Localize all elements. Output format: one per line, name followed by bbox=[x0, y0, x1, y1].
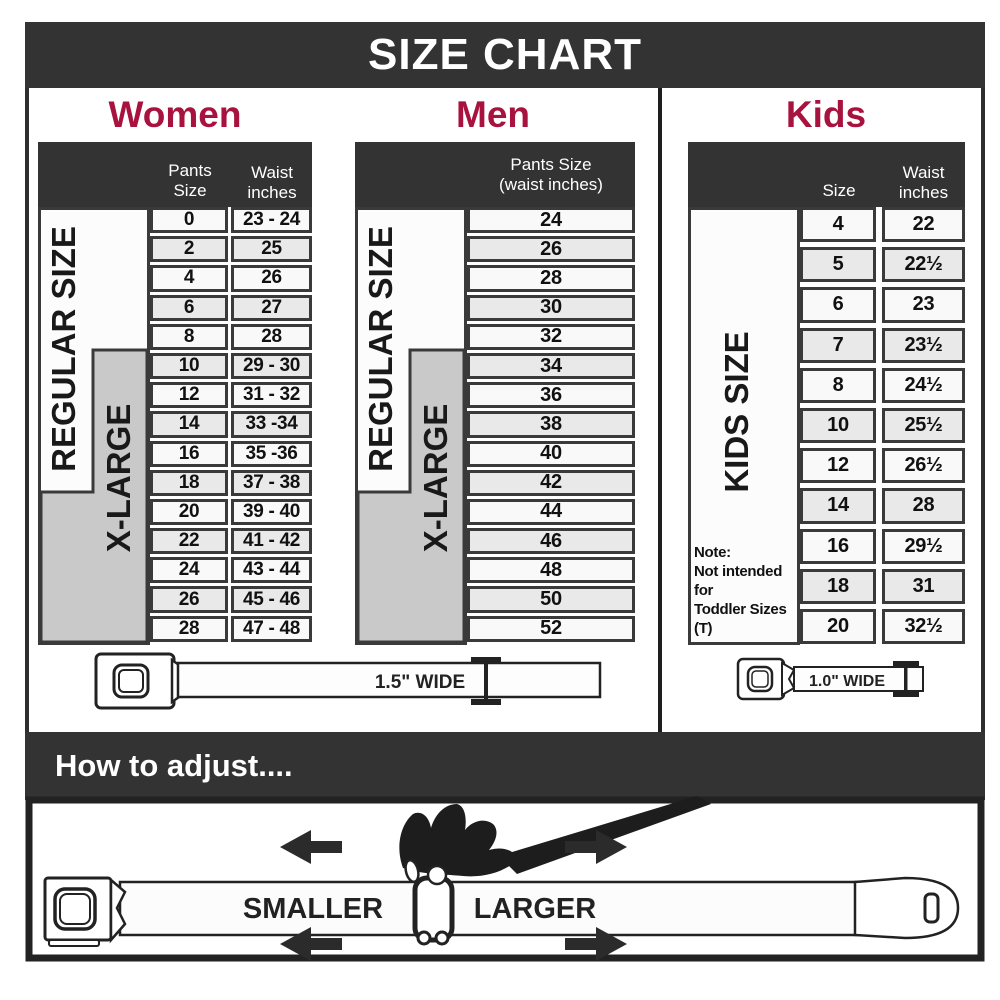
kids-note: Note: Not intended for Toddler Sizes (T) bbox=[694, 543, 796, 638]
table-cell: 5 bbox=[800, 247, 876, 282]
table-cell: 12 bbox=[800, 448, 876, 483]
table-cell: 12 bbox=[150, 382, 228, 408]
table-cell: 48 bbox=[467, 557, 635, 583]
kids-heading: Kids bbox=[701, 94, 951, 136]
table-cell: 31 bbox=[882, 569, 965, 604]
table-cell: 28 bbox=[231, 324, 312, 350]
adult-belt-illustration: 1.5" WIDE bbox=[90, 650, 610, 712]
table-cell: 2 bbox=[150, 236, 228, 262]
table-cell: 24 bbox=[467, 207, 635, 233]
table-cell: 20 bbox=[150, 499, 228, 525]
table-cell: 41 - 42 bbox=[231, 528, 312, 554]
table-cell: 28 bbox=[882, 488, 965, 523]
kids-size-table: 422522½623723½824½1025½1226½14281629½183… bbox=[800, 207, 965, 644]
kids-note-line1: Note: bbox=[694, 543, 796, 562]
women-table-header: Pants Size Waist inches bbox=[38, 142, 312, 207]
table-cell: 44 bbox=[467, 499, 635, 525]
women-regular-size-label: REGULAR SIZE bbox=[45, 226, 83, 472]
kids-note-line2: Not intended for bbox=[694, 562, 796, 600]
men-regular-size-label: REGULAR SIZE bbox=[362, 226, 400, 472]
men-table-header: Pants Size (waist inches) bbox=[355, 142, 635, 207]
table-cell: 38 bbox=[467, 411, 635, 437]
table-cell: 43 - 44 bbox=[231, 557, 312, 583]
table-cell: 34 bbox=[467, 353, 635, 379]
table-cell: 40 bbox=[467, 441, 635, 467]
table-cell: 26 bbox=[467, 236, 635, 262]
table-cell: 6 bbox=[150, 295, 228, 321]
women-waist-header: Waist inches bbox=[232, 163, 312, 203]
table-cell: 28 bbox=[150, 616, 228, 642]
table-cell: 26½ bbox=[882, 448, 965, 483]
table-cell: 29 - 30 bbox=[231, 353, 312, 379]
men-xlarge-label: X-LARGE bbox=[417, 404, 455, 553]
table-cell: 25 bbox=[231, 236, 312, 262]
women-xlarge-label: X-LARGE bbox=[100, 404, 138, 553]
women-size-table: 023 - 242254266278281029 - 301231 - 3214… bbox=[150, 207, 312, 642]
table-cell: 16 bbox=[150, 441, 228, 467]
men-pants-size-header: Pants Size (waist inches) bbox=[467, 155, 635, 195]
table-cell: 14 bbox=[800, 488, 876, 523]
table-cell: 18 bbox=[150, 470, 228, 496]
table-cell: 50 bbox=[467, 586, 635, 612]
main-panel: Women Men Kids Pants Size Waist inches R… bbox=[25, 88, 985, 732]
table-cell: 4 bbox=[800, 207, 876, 242]
kids-waist-header-line2: inches bbox=[882, 183, 965, 203]
table-cell: 47 - 48 bbox=[231, 616, 312, 642]
table-cell: 45 - 46 bbox=[231, 586, 312, 612]
men-heading: Men bbox=[368, 94, 618, 136]
table-cell: 37 - 38 bbox=[231, 470, 312, 496]
table-cell: 0 bbox=[150, 207, 228, 233]
table-cell: 10 bbox=[800, 408, 876, 443]
kids-table-header: Size Waist inches bbox=[688, 142, 965, 207]
table-cell: 33 -34 bbox=[231, 411, 312, 437]
belt-adjuster bbox=[415, 878, 452, 944]
table-cell: 25½ bbox=[882, 408, 965, 443]
kids-size-header: Size bbox=[800, 181, 878, 201]
kids-size-label-column: KIDS SIZE Note: Not intended for Toddler… bbox=[688, 207, 800, 645]
kids-waist-header: Waist inches bbox=[882, 163, 965, 203]
table-cell: 7 bbox=[800, 328, 876, 363]
table-cell: 35 -36 bbox=[231, 441, 312, 467]
table-cell: 8 bbox=[800, 368, 876, 403]
table-cell: 36 bbox=[467, 382, 635, 408]
kids-size-label: KIDS SIZE bbox=[718, 331, 756, 492]
table-cell: 22½ bbox=[882, 247, 965, 282]
how-to-adjust-heading: How to adjust.... bbox=[55, 748, 293, 784]
seatbelt-buckle-icon bbox=[738, 659, 794, 699]
table-cell: 26 bbox=[231, 265, 312, 291]
table-cell: 29½ bbox=[882, 529, 965, 564]
table-cell: 28 bbox=[467, 265, 635, 291]
table-cell: 32 bbox=[467, 324, 635, 350]
women-pants-size-header: Pants Size bbox=[150, 161, 230, 201]
table-cell: 20 bbox=[800, 609, 876, 644]
table-cell: 27 bbox=[231, 295, 312, 321]
adult-belt-width-label: 1.5" WIDE bbox=[375, 672, 465, 693]
men-header-line2: (waist inches) bbox=[467, 175, 635, 195]
belt-tail bbox=[855, 878, 958, 938]
page-title: SIZE CHART bbox=[368, 30, 642, 80]
panel-divider bbox=[658, 88, 662, 732]
table-cell: 42 bbox=[467, 470, 635, 496]
table-cell: 8 bbox=[150, 324, 228, 350]
table-cell: 24 bbox=[150, 557, 228, 583]
size-chart-page: SIZE CHART Women Men Kids Pants Size Wai… bbox=[0, 0, 1000, 1000]
larger-label: LARGER bbox=[474, 893, 597, 925]
kids-note-line3: Toddler Sizes (T) bbox=[694, 600, 796, 638]
table-cell: 23 - 24 bbox=[231, 207, 312, 233]
table-cell: 39 - 40 bbox=[231, 499, 312, 525]
kids-belt-illustration: 1.0" WIDE bbox=[735, 655, 930, 705]
table-cell: 46 bbox=[467, 528, 635, 554]
table-cell: 24½ bbox=[882, 368, 965, 403]
men-size-table: 242628303234363840424446485052 bbox=[467, 207, 635, 642]
table-cell: 30 bbox=[467, 295, 635, 321]
women-size-label-column: REGULAR SIZE X-LARGE bbox=[38, 207, 150, 645]
table-cell: 23½ bbox=[882, 328, 965, 363]
how-to-adjust-bar: How to adjust.... bbox=[25, 732, 985, 800]
table-cell: 23 bbox=[882, 287, 965, 322]
table-cell: 22 bbox=[882, 207, 965, 242]
seatbelt-buckle-icon bbox=[45, 878, 125, 946]
table-cell: 22 bbox=[150, 528, 228, 554]
table-cell: 52 bbox=[467, 616, 635, 642]
table-cell: 6 bbox=[800, 287, 876, 322]
women-waist-header-line1: Waist bbox=[232, 163, 312, 183]
smaller-label: SMALLER bbox=[243, 893, 383, 925]
men-header-line1: Pants Size bbox=[467, 155, 635, 175]
table-cell: 16 bbox=[800, 529, 876, 564]
table-cell: 32½ bbox=[882, 609, 965, 644]
table-cell: 4 bbox=[150, 265, 228, 291]
right-border bbox=[981, 88, 985, 732]
men-size-label-column: REGULAR SIZE X-LARGE bbox=[355, 207, 467, 645]
table-cell: 26 bbox=[150, 586, 228, 612]
adjust-illustration: SMALLER LARGER bbox=[25, 794, 985, 964]
table-cell: 10 bbox=[150, 353, 228, 379]
table-cell: 18 bbox=[800, 569, 876, 604]
left-border bbox=[25, 88, 29, 732]
kids-waist-header-line1: Waist bbox=[882, 163, 965, 183]
women-heading: Women bbox=[50, 94, 300, 136]
table-cell: 31 - 32 bbox=[231, 382, 312, 408]
women-waist-header-line2: inches bbox=[232, 183, 312, 203]
table-cell: 14 bbox=[150, 411, 228, 437]
seatbelt-buckle-icon bbox=[96, 654, 186, 708]
title-banner: SIZE CHART bbox=[25, 22, 985, 88]
kids-belt-width-label: 1.0" WIDE bbox=[809, 673, 885, 690]
